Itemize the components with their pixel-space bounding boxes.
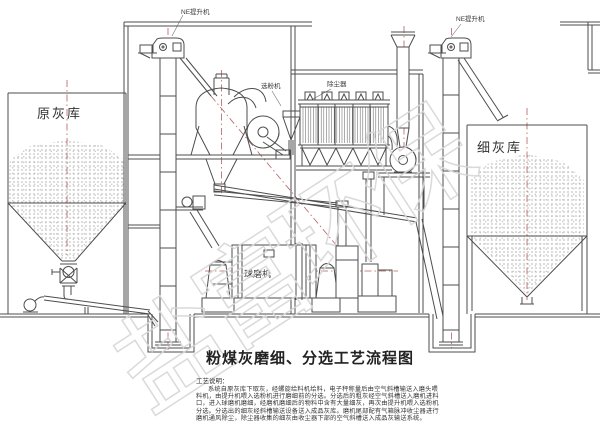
label-ball-mill: 球磨机 [244,268,271,279]
notes-heading: 工艺说明： [196,375,488,385]
notes-line: 口，进入球磨机磨细，经磨机磨细后的物料中含有大量细灰，再次由提升机喂入选粉机 [196,400,488,407]
ball-mill [202,243,396,312]
raw-ash-silo [8,93,150,314]
label-raw-ash-silo: 原灰库 [37,106,82,121]
label-dust-collector: 除尘器 [327,79,347,88]
process-flow-diagram: NE提升机 NE提升机 选粉机 除尘器 球磨机 原灰库 细灰库 盐 富 环 保 … [0,0,600,443]
notes-line: 磨机通风除尘，除尘器收集的细灰由收尘器下部的空气斜槽送入成品灰输送系统。 [196,415,488,422]
drawing-title: 粉煤灰磨细、分选工艺流程图 [205,347,415,368]
label-ne-elevator-left: NE提升机 [181,7,210,16]
label-ne-elevator-right: NE提升机 [456,14,485,23]
exhaust-fan-stack [390,32,416,173]
right-elevator [428,24,508,345]
label-fine-ash-silo: 细灰库 [477,140,522,155]
label-classifier: 选粉机 [261,81,281,90]
notes-line: 分选。分选出的细灰经斜槽输送设备送入成品灰库。磨机尾部配有气箱脉冲收尘器进行 [196,408,488,415]
process-notes: 工艺说明： 系统自原灰库下取灰，经螺旋给料机给料，电子秤称量后由空气斜槽输送入磨… [196,375,488,422]
left-elevator [138,15,217,345]
classifier [182,74,300,248]
dust-collector [298,89,397,262]
